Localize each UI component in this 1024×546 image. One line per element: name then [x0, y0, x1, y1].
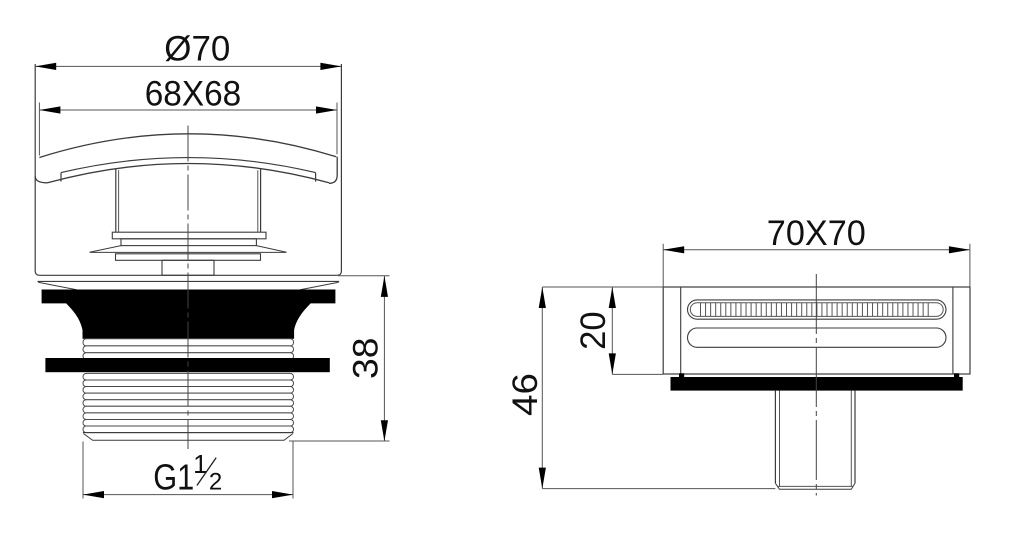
- svg-text:G1: G1: [153, 457, 194, 498]
- svg-text:46: 46: [505, 373, 545, 416]
- svg-text:70X70: 70X70: [767, 213, 866, 253]
- svg-text:68X68: 68X68: [145, 74, 242, 114]
- svg-text:20: 20: [573, 311, 613, 350]
- svg-text:Ø70: Ø70: [164, 29, 230, 69]
- svg-text:38: 38: [345, 337, 385, 379]
- svg-text:2: 2: [209, 469, 222, 496]
